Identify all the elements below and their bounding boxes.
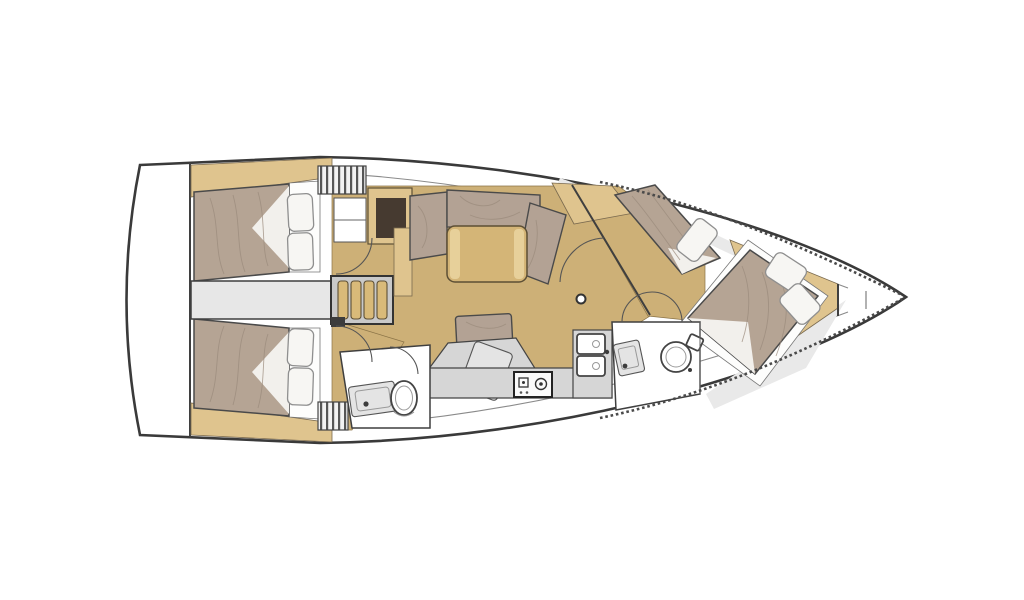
- companionway-steps: [331, 276, 393, 327]
- pillow: [287, 368, 313, 406]
- settee-cushion-left: [410, 192, 447, 260]
- yacht-floorplan-canvas: [0, 0, 1024, 600]
- step: [377, 281, 387, 319]
- table-end-left: [450, 229, 460, 279]
- step: [351, 281, 361, 319]
- pillow: [287, 233, 313, 271]
- step: [338, 281, 348, 319]
- stove-icon: [514, 372, 552, 397]
- table-end-right: [514, 229, 524, 279]
- mast-post: [577, 295, 586, 304]
- louver-hatch-bottom: [318, 402, 348, 430]
- floorplan-svg: [0, 0, 1024, 600]
- aft-head: [340, 345, 430, 428]
- pillow: [287, 328, 314, 366]
- louver-hatch-top: [318, 166, 366, 194]
- toilet-icon: [391, 381, 417, 416]
- forward-head: [612, 322, 704, 410]
- pillow: [287, 193, 314, 231]
- aft-cabin-port: [191, 158, 332, 281]
- step: [364, 281, 374, 319]
- engine-corridor: [191, 281, 332, 319]
- aft-cabin-starboard: [191, 319, 332, 442]
